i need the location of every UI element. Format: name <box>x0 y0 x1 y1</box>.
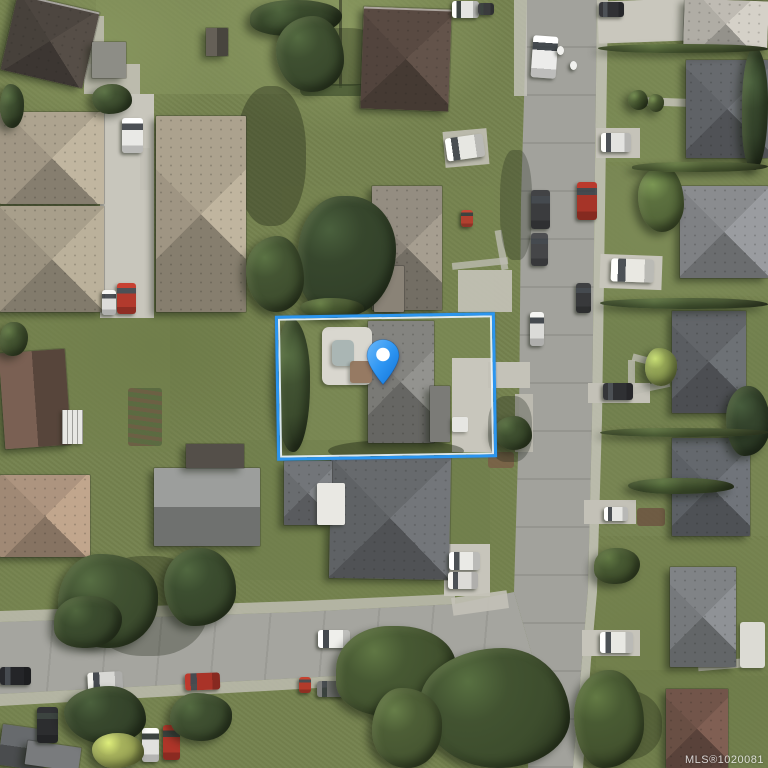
car-dark-top <box>478 3 494 15</box>
aerial-map-image[interactable]: MLS®1020081 <box>0 0 768 768</box>
car-black-diag-1 <box>0 667 31 685</box>
garden-rows-west <box>128 388 162 446</box>
roof-house-brown-top <box>360 6 452 111</box>
roof-shed-dark <box>186 444 244 468</box>
object-red-north-lawn <box>461 210 473 227</box>
bush-east-lawn-1 <box>628 90 648 110</box>
car-white-south-2 <box>448 572 478 589</box>
tree-sw-5 <box>170 693 232 741</box>
car-dark-east-drive <box>603 383 633 400</box>
screenshot-root: MLS®1020081 <box>0 0 768 768</box>
truck-white-top <box>452 1 479 18</box>
roof-east-3 <box>680 186 768 278</box>
roof-south-house <box>329 456 451 580</box>
car-dark-top-right <box>599 2 624 17</box>
bush-target-se <box>494 416 532 450</box>
map-pin-icon <box>366 338 400 386</box>
driveway-target <box>452 358 492 452</box>
bush-yellow-east <box>645 348 677 386</box>
bush-east-lawn-2 <box>648 94 664 112</box>
tree-left-edge-top <box>0 84 24 128</box>
tree-mid-west <box>246 236 304 312</box>
roof-condo-b <box>0 206 104 312</box>
pergola-grid <box>62 410 83 444</box>
mulch-east-1 <box>637 508 665 526</box>
van-white-diag <box>142 728 159 762</box>
roof-corner-sw-2 <box>25 740 82 768</box>
car-white-street <box>530 312 544 346</box>
car-red-diag-3 <box>299 677 311 693</box>
car-dark-street-3 <box>576 283 591 313</box>
tree-boundary-west <box>276 318 310 452</box>
pin-body <box>367 340 399 385</box>
tree-dark-east-edge <box>726 386 768 456</box>
bush-boundary-north <box>300 298 364 318</box>
truck-red-street <box>577 182 597 220</box>
driveway-target-apron <box>488 362 530 388</box>
boat-trailer-street <box>531 35 559 79</box>
traffic-cone-1 <box>557 46 564 55</box>
tree-bright-east <box>638 166 684 232</box>
roof-east-6 <box>670 567 736 667</box>
car-dark-street-2 <box>531 233 548 266</box>
suv-black-diag <box>37 707 58 743</box>
roof-house-west-gray <box>154 468 260 546</box>
car-dark-street-1 <box>531 190 550 229</box>
rv-white-driveway <box>611 258 655 282</box>
roof-shed-gray <box>92 42 126 78</box>
roof-house-brown-left <box>0 349 71 449</box>
tree-hedge-top <box>276 16 344 92</box>
rv-white-east <box>740 622 765 668</box>
driveway-north-house <box>458 270 512 312</box>
camper-white-corner <box>600 632 633 653</box>
sidewalk-west-top <box>514 0 527 96</box>
shadow-conifers-west <box>236 86 306 226</box>
roof-east-1 <box>683 0 768 49</box>
hedgerow-east-5 <box>628 478 734 494</box>
mls-watermark: MLS®1020081 <box>685 754 764 766</box>
car-red-diag-1 <box>185 672 221 690</box>
car-white-south-1 <box>449 552 480 570</box>
tree-se-road <box>574 670 644 768</box>
pin-center-dot <box>376 348 390 362</box>
tree-intersection-3 <box>372 688 442 768</box>
car-red-condo <box>117 283 136 314</box>
tree-yellow-sw <box>92 733 144 768</box>
tree-intersection-2 <box>420 648 570 768</box>
car-white-condo <box>122 118 143 153</box>
car-white-condo-2 <box>102 290 116 315</box>
roof-house-tan <box>0 475 90 557</box>
condo-walk-v <box>140 148 150 190</box>
tree-condo-north <box>92 84 132 114</box>
roof-target-wing <box>430 386 450 442</box>
tree-sw-2 <box>164 548 236 626</box>
car-white-east-drive <box>604 507 628 521</box>
roof-shed-top-lawn <box>206 28 228 56</box>
roof-condo-dark <box>0 0 99 88</box>
shadow-road-west-2 <box>500 150 532 260</box>
roof-condo-c <box>156 116 246 312</box>
hedgerow-east-4 <box>600 428 768 437</box>
ac-units-white <box>452 417 468 432</box>
van-white-east <box>601 133 631 152</box>
hedgerow-east-1 <box>598 44 768 53</box>
traffic-cone-2 <box>570 61 577 70</box>
canopy-white <box>317 483 345 525</box>
